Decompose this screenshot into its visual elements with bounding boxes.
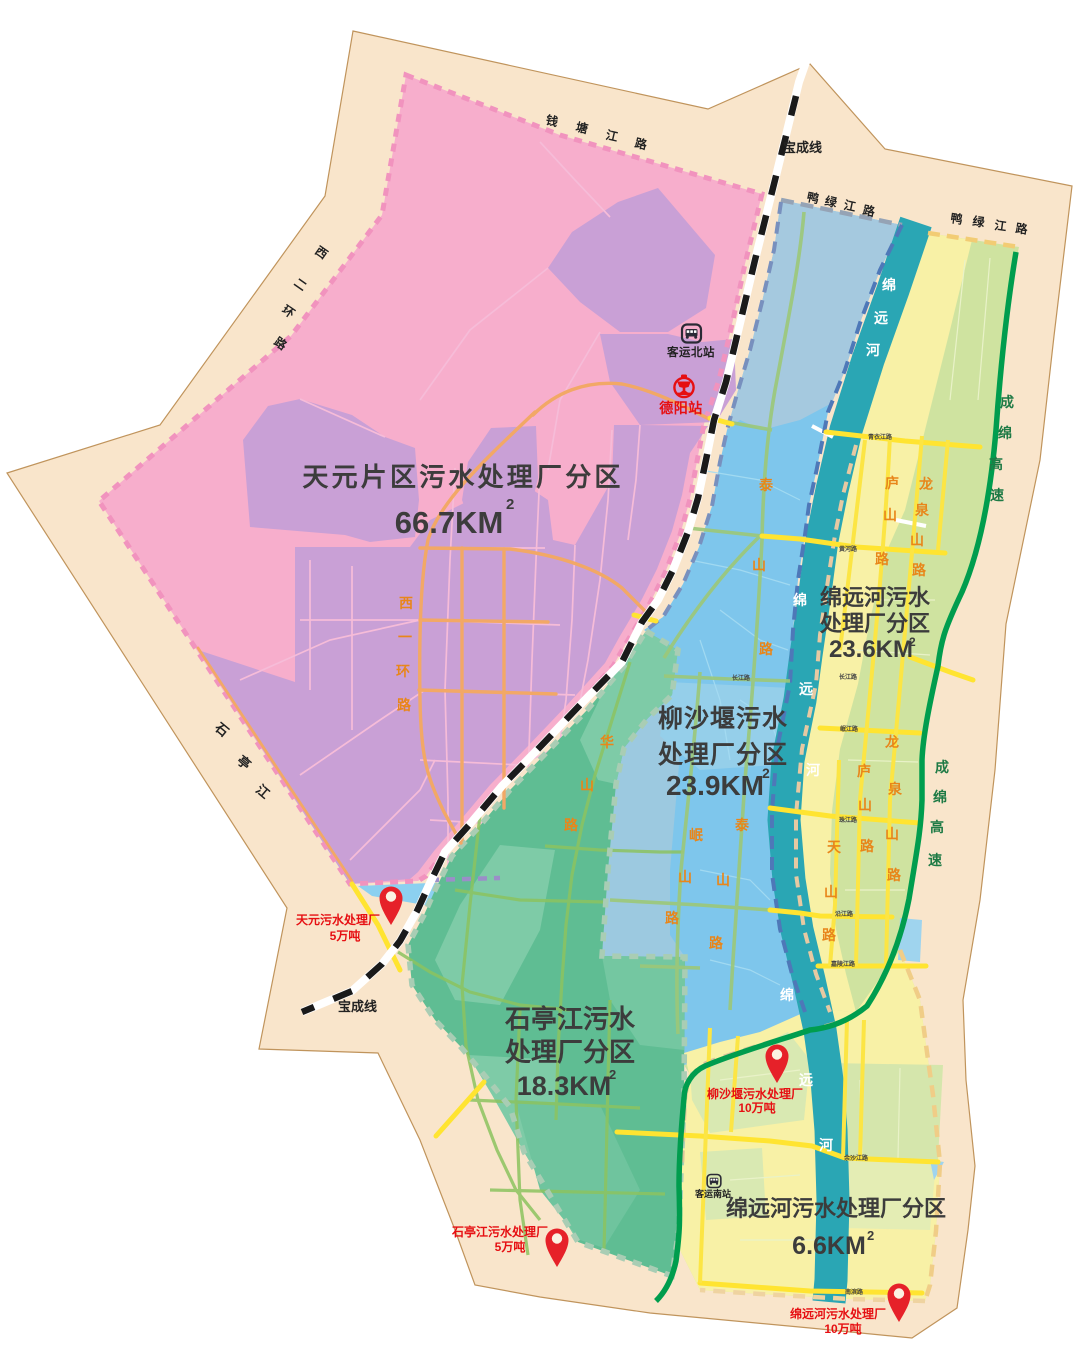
svg-text:山: 山 xyxy=(858,797,872,813)
svg-text:66.7KM: 66.7KM xyxy=(395,505,504,540)
svg-text:珠江路: 珠江路 xyxy=(839,816,858,824)
svg-text:山: 山 xyxy=(678,869,692,885)
svg-text:绵远河污水处理厂: 绵远河污水处理厂 xyxy=(790,1306,886,1321)
svg-text:路: 路 xyxy=(709,935,724,951)
svg-text:绵: 绵 xyxy=(882,277,896,293)
svg-text:山: 山 xyxy=(752,557,766,573)
svg-text:处理厂分区: 处理厂分区 xyxy=(504,1037,635,1067)
svg-text:2: 2 xyxy=(867,1228,874,1243)
svg-text:绵远河污水: 绵远河污水 xyxy=(820,585,931,610)
svg-text:绵远河污水处理厂分区: 绵远河污水处理厂分区 xyxy=(726,1196,946,1221)
svg-text:成: 成 xyxy=(935,759,949,775)
svg-text:泰: 泰 xyxy=(758,477,774,493)
svg-text:山: 山 xyxy=(580,777,594,793)
svg-text:绵: 绵 xyxy=(780,987,794,1003)
svg-text:宝成线: 宝成线 xyxy=(338,999,377,1014)
svg-text:青衣江路: 青衣江路 xyxy=(868,433,893,441)
svg-text:5万吨: 5万吨 xyxy=(330,928,361,943)
svg-text:10万吨: 10万吨 xyxy=(738,1100,775,1115)
svg-text:南滨路: 南滨路 xyxy=(845,1288,864,1296)
svg-text:成: 成 xyxy=(1000,394,1014,410)
svg-text:庐: 庐 xyxy=(857,763,871,779)
svg-text:路: 路 xyxy=(759,641,774,657)
svg-text:石亭江污水处理厂: 石亭江污水处理厂 xyxy=(451,1224,548,1239)
svg-text:23.9KM: 23.9KM xyxy=(666,770,764,801)
svg-text:龙: 龙 xyxy=(918,476,933,492)
svg-text:天元片区污水处理厂分区: 天元片区污水处理厂分区 xyxy=(302,462,623,492)
svg-text:2: 2 xyxy=(506,496,514,513)
svg-text:路: 路 xyxy=(822,927,837,943)
svg-text:长江路: 长江路 xyxy=(839,673,858,681)
svg-text:西: 西 xyxy=(399,595,413,611)
svg-text:一: 一 xyxy=(398,629,412,645)
svg-text:河: 河 xyxy=(806,762,820,778)
svg-text:2: 2 xyxy=(609,1067,616,1082)
svg-text:德阳站: 德阳站 xyxy=(659,400,703,416)
svg-text:23.6KM: 23.6KM xyxy=(829,636,913,663)
svg-text:绵: 绵 xyxy=(933,789,947,805)
svg-text:高: 高 xyxy=(989,456,1003,472)
svg-text:处理厂分区: 处理厂分区 xyxy=(819,611,930,636)
svg-text:远: 远 xyxy=(799,1072,813,1088)
svg-text:泰: 泰 xyxy=(734,817,750,833)
svg-text:山: 山 xyxy=(910,532,924,548)
svg-text:长江路: 长江路 xyxy=(732,674,751,682)
svg-text:山: 山 xyxy=(824,884,838,900)
svg-text:5万吨: 5万吨 xyxy=(495,1239,526,1254)
svg-text:速: 速 xyxy=(928,852,942,868)
svg-text:柳沙堰污水: 柳沙堰污水 xyxy=(658,705,788,733)
svg-text:山: 山 xyxy=(883,507,897,523)
svg-text:华: 华 xyxy=(600,734,614,750)
svg-text:岷: 岷 xyxy=(689,827,703,843)
svg-text:山: 山 xyxy=(716,872,730,888)
svg-text:绵: 绵 xyxy=(793,592,807,608)
svg-text:速: 速 xyxy=(990,487,1004,503)
svg-text:路: 路 xyxy=(397,697,412,713)
svg-text:6.6KM: 6.6KM xyxy=(792,1232,866,1260)
svg-text:嘉陵江路: 嘉陵江路 xyxy=(830,960,856,968)
svg-text:鸭: 鸭 xyxy=(950,210,964,227)
svg-text:路: 路 xyxy=(875,551,890,567)
svg-text:沿江路: 沿江路 xyxy=(835,910,854,918)
svg-text:客运北站: 客运北站 xyxy=(666,345,715,359)
svg-text:天: 天 xyxy=(827,839,842,855)
svg-text:路: 路 xyxy=(860,838,875,854)
svg-text:宝成线: 宝成线 xyxy=(783,140,822,155)
svg-text:远: 远 xyxy=(874,310,888,326)
svg-text:路: 路 xyxy=(564,817,579,833)
svg-text:高: 高 xyxy=(930,819,944,835)
svg-text:柳沙堰污水处理厂: 柳沙堰污水处理厂 xyxy=(707,1086,803,1101)
svg-text:2: 2 xyxy=(762,765,770,781)
svg-text:龙: 龙 xyxy=(884,734,899,750)
svg-text:路: 路 xyxy=(665,910,680,926)
svg-text:天元污水处理厂: 天元污水处理厂 xyxy=(296,912,380,927)
svg-text:环: 环 xyxy=(396,663,410,679)
svg-text:岷江路: 岷江路 xyxy=(840,725,859,733)
svg-text:河: 河 xyxy=(819,1137,833,1153)
svg-text:山: 山 xyxy=(885,826,899,842)
svg-text:绵: 绵 xyxy=(998,425,1012,441)
svg-text:余沙江路: 余沙江路 xyxy=(843,1154,869,1162)
svg-text:庐: 庐 xyxy=(885,475,899,491)
svg-text:泉: 泉 xyxy=(888,781,903,797)
svg-text:客运南站: 客运南站 xyxy=(694,1188,731,1199)
svg-text:18.3KM: 18.3KM xyxy=(517,1071,612,1101)
svg-text:路: 路 xyxy=(887,867,902,883)
svg-text:远: 远 xyxy=(799,681,813,697)
svg-text:河: 河 xyxy=(866,342,880,358)
svg-text:石亭江污水: 石亭江污水 xyxy=(504,1004,636,1034)
svg-text:路: 路 xyxy=(912,562,927,578)
svg-text:黄河路: 黄河路 xyxy=(839,545,858,553)
svg-text:10万吨: 10万吨 xyxy=(824,1321,861,1336)
svg-text:江: 江 xyxy=(994,217,1008,234)
svg-text:泉: 泉 xyxy=(915,502,930,518)
svg-text:2: 2 xyxy=(909,635,916,649)
